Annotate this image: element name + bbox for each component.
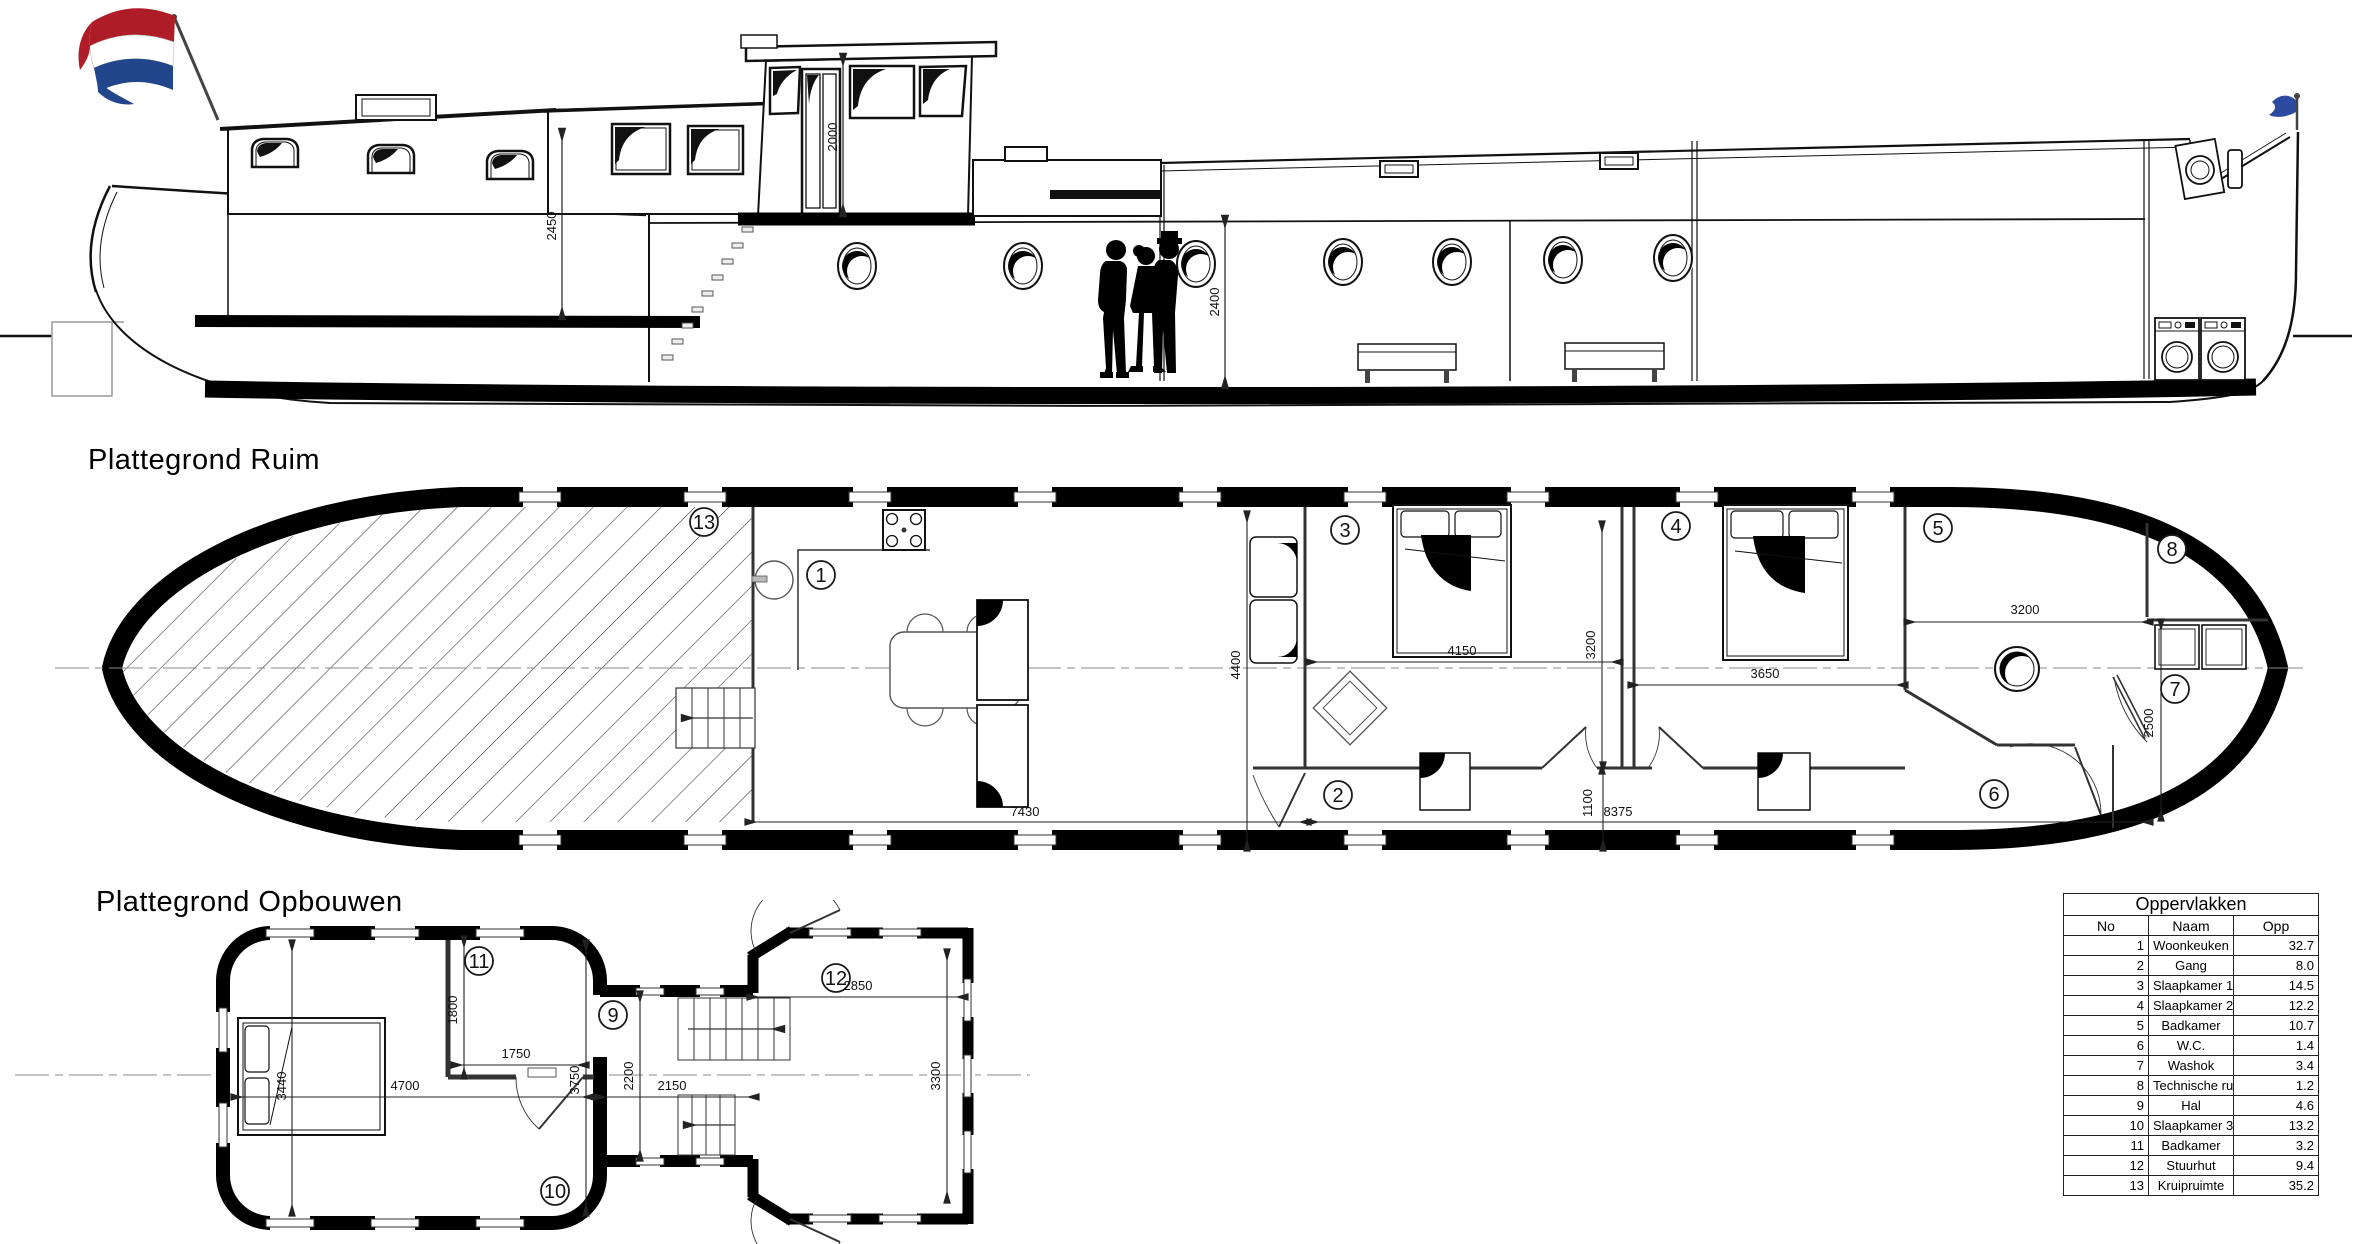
opbouwen-floor-plan: 11 9 10 12 3440 4700 1800 1750 3750 2200… — [0, 900, 1060, 1244]
stern-deck-gear — [2175, 139, 2242, 199]
col-opp: Opp — [2234, 916, 2319, 936]
houseboat-drawing-page: 2450 2000 2400 Plattegrond Ruim — [0, 0, 2362, 1244]
table-row: 13Kruipruimte35.2 — [2064, 1176, 2319, 1196]
table-row: 1Woonkeuken32.7 — [2064, 936, 2319, 956]
dim-slaapkamer1-d: 3200 — [1583, 631, 1598, 660]
dim-bad-w: 1750 — [502, 1046, 531, 1061]
people-silhouettes — [1098, 231, 1182, 378]
stairs-up — [678, 998, 790, 1060]
areas-table-title: Oppervlakken — [2064, 894, 2319, 916]
stairs-fore — [662, 227, 753, 360]
table-row: 8Technische ruimte1.2 — [2064, 1076, 2319, 1096]
svg-text:6: 6 — [1988, 784, 1999, 806]
dim-stuur-w: 2850 — [844, 978, 873, 993]
dim-sl3-d: 3440 — [274, 1072, 289, 1101]
svg-text:5: 5 — [1932, 518, 1943, 540]
stern-flag-icon — [2269, 93, 2300, 130]
room-marker-3: 3 — [1331, 516, 1359, 544]
dim-elev-fore: 2450 — [544, 212, 559, 241]
table-row: 11Badkamer3.2 — [2064, 1136, 2319, 1156]
bed-icon — [238, 1018, 385, 1135]
table-row: 7Washok3.4 — [2064, 1056, 2319, 1076]
svg-text:8: 8 — [2166, 539, 2177, 561]
areas-table: Oppervlakken No Naam Opp 1Woonkeuken32.7… — [2063, 893, 2319, 1196]
table-row: 5Badkamer10.7 — [2064, 1016, 2319, 1036]
svg-text:9: 9 — [607, 1005, 618, 1027]
table-row: 10Slaapkamer 313.2 — [2064, 1116, 2319, 1136]
svg-text:13: 13 — [693, 512, 715, 534]
dutch-flag-icon — [79, 8, 219, 120]
table-row: 12Stuurhut9.4 — [2064, 1156, 2319, 1176]
portholes — [838, 235, 1693, 289]
areas-table-header: No Naam Opp — [2064, 916, 2319, 936]
table-row: 2Gang8.0 — [2064, 956, 2319, 976]
room-marker-1: 1 — [807, 561, 835, 589]
stove-icon — [883, 510, 925, 550]
dim-badkamer-w: 3200 — [2011, 602, 2040, 617]
wheelhouse — [738, 35, 996, 219]
table-row: 4Slaapkamer 212.2 — [2064, 996, 2319, 1016]
elevation-view: 2450 2000 2400 — [0, 0, 2362, 445]
room-marker-8: 8 — [2158, 535, 2186, 563]
room-marker-7: 7 — [2161, 675, 2189, 703]
room-marker-6: 6 — [1980, 780, 2008, 808]
dim-elev-wheelhouse: 2000 — [825, 123, 840, 152]
room-marker-9: 9 — [599, 1001, 627, 1029]
dock — [52, 322, 124, 396]
dim-sl3-w: 4700 — [391, 1078, 420, 1093]
dim-hal-w: 2150 — [658, 1078, 687, 1093]
table-row: 6W.C.1.4 — [2064, 1036, 2319, 1056]
washer-dryer — [2155, 318, 2245, 380]
stairs-down — [678, 1095, 735, 1155]
bed-icon — [1723, 505, 1848, 660]
aft-cabin — [973, 147, 1161, 216]
room-marker-13: 13 — [690, 508, 718, 536]
dim-hal-d: 2200 — [621, 1062, 636, 1091]
room-marker-11: 11 — [465, 947, 493, 975]
bed-icon — [1393, 505, 1511, 657]
room-marker-10: 10 — [541, 1177, 569, 1205]
shower-icon — [1995, 647, 2039, 691]
ruim-floor-plan: 13 1 2 3 4 5 6 7 8 7430 8375 4400 4150 3… — [0, 455, 2362, 885]
dim-gang-w: 1100 — [1580, 789, 1595, 817]
room-marker-5: 5 — [1924, 514, 1952, 542]
dim-slaapkamer1-w: 4150 — [1448, 643, 1477, 658]
benches — [1358, 343, 1664, 383]
area-table-body: 1Woonkeuken32.72Gang8.03Slaapkamer 114.5… — [2064, 936, 2319, 1196]
svg-text:10: 10 — [544, 1181, 566, 1203]
dim-gang-l: 8375 — [1604, 804, 1633, 819]
svg-text:1: 1 — [815, 565, 826, 587]
roof-hatch-icon — [356, 95, 436, 120]
room-marker-2: 2 — [1324, 781, 1352, 809]
dim-cabin-d: 3750 — [567, 1066, 582, 1095]
dim-woonkeuken-w: 7430 — [1011, 804, 1040, 819]
col-naam: Naam — [2149, 916, 2234, 936]
table-row: 9Hal4.6 — [2064, 1096, 2319, 1116]
dim-beam: 4400 — [1228, 651, 1243, 680]
dim-washok-d: 2500 — [2141, 709, 2156, 738]
svg-text:2: 2 — [1332, 785, 1343, 807]
svg-text:11: 11 — [469, 951, 490, 973]
dim-slaapkamer2-w: 3650 — [1751, 666, 1780, 681]
svg-text:7: 7 — [2169, 679, 2180, 701]
dim-stuur-d: 3300 — [928, 1062, 943, 1091]
forward-cabin — [220, 95, 556, 318]
table-row: 3Slaapkamer 114.5 — [2064, 976, 2319, 996]
mid-cabin — [544, 103, 780, 214]
svg-text:3: 3 — [1339, 520, 1350, 542]
dim-elev-hold: 2400 — [1207, 288, 1222, 317]
room-marker-4: 4 — [1662, 512, 1690, 540]
dim-bad-d: 1800 — [445, 996, 460, 1025]
col-no: No — [2064, 916, 2149, 936]
svg-text:4: 4 — [1670, 516, 1681, 538]
